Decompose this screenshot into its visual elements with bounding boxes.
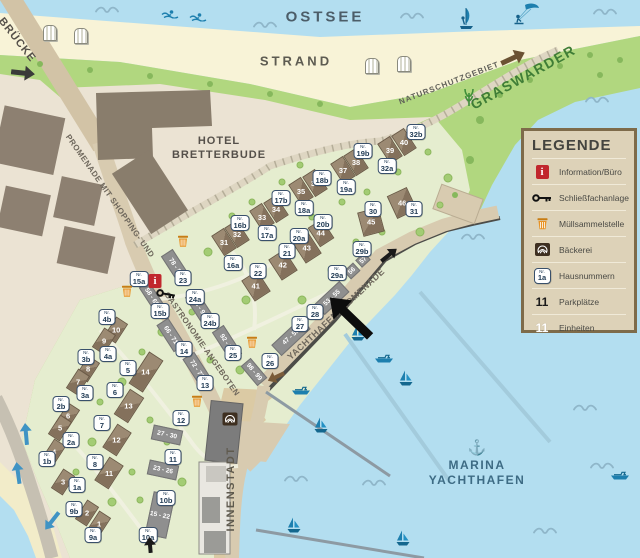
house-number-badge-15b: Nr.15b — [151, 303, 170, 319]
unit-number-icon: 11 — [536, 321, 549, 335]
house-number-badge-3a: Nr.3a — [77, 385, 94, 401]
map-label-ostsee: OSTSEE — [286, 9, 365, 26]
house-number-badge-12: Nr.12 — [173, 410, 190, 426]
unit-number: 43 — [303, 244, 311, 253]
pretzel-icon — [535, 243, 550, 256]
kitesurf-icon — [511, 3, 541, 25]
anchor-icon: ⚓ — [468, 441, 487, 456]
house-number-badge-1a: Nr.1a — [69, 477, 86, 493]
unit-number: 42 — [279, 261, 287, 270]
unit-number: 9 — [102, 336, 106, 345]
quay-road-arrow — [377, 244, 400, 266]
legend-item-parkplätze: 11Parkplätze — [532, 288, 626, 314]
house-number-badge-21: Nr.21 — [279, 243, 296, 259]
unit-number: 37 — [339, 166, 347, 175]
motorboat-icon — [610, 472, 630, 481]
unit-number: 45 — [367, 218, 375, 227]
motorboat-icon — [374, 355, 394, 364]
map-label-marina: MARINA — [449, 458, 506, 472]
wave-icon — [573, 404, 597, 413]
wave-icon — [362, 479, 386, 488]
legend-item-label: Einheiten — [559, 323, 594, 333]
unit-number: 31 — [220, 238, 228, 247]
motorboat-icon — [610, 472, 630, 481]
bridge-road-arrow — [10, 64, 35, 81]
chair-icon — [397, 56, 411, 72]
trash-icon — [122, 285, 133, 298]
trash-icon — [247, 336, 258, 349]
resort-map: OSTSEESTRANDNATURSCHUTZGEBIETGRASWARDERH… — [0, 0, 640, 558]
sailboat-icon — [314, 417, 329, 434]
house-number-badge-13: Nr.13 — [197, 375, 214, 391]
wave-icon — [253, 21, 277, 30]
house-number-badge-26: Nr.26 — [262, 353, 279, 369]
wave-icon — [400, 12, 424, 21]
wave-icon — [95, 6, 119, 15]
legend-item-label: Müllsammelstelle — [559, 219, 624, 229]
house-number-badge-11: Nr.11 — [165, 449, 182, 465]
house-number-badge-16b: Nr.16b — [231, 215, 250, 231]
unit-number: 11 — [105, 469, 113, 478]
grass-icon — [462, 87, 476, 107]
coast-road-3-arrow — [40, 509, 63, 534]
pretzel-icon — [223, 413, 238, 426]
map-label-promenade-mit-shopping-und: PROMENADE MIT SHOPPING- UND — [64, 133, 156, 260]
house-number-badge-14: Nr.14 — [176, 341, 193, 357]
house-number-badge-7: Nr.7 — [94, 415, 111, 431]
house-number-badge-19b: Nr.19b — [354, 143, 373, 159]
house-number-badge-17b: Nr.17b — [272, 190, 291, 206]
trash-icon — [122, 285, 133, 298]
wave-icon — [533, 527, 557, 536]
legend-panel: LEGENDE iInformation/BüroSchließfachanla… — [521, 128, 637, 333]
chair-icon — [365, 58, 379, 74]
wave-icon — [284, 475, 308, 484]
wave-icon — [461, 233, 485, 242]
map-label-br-cke: BRÜCKE — [0, 15, 38, 64]
pretzel-icon — [223, 413, 238, 426]
beach-chair-icon — [43, 25, 57, 41]
house-number-badge-29b: Nr.29b — [353, 241, 372, 257]
wave-icon — [590, 462, 614, 471]
beach-chair-icon — [74, 28, 88, 44]
house-number-badge-4a: Nr.4a — [100, 346, 117, 362]
legend-item-label: Parkplätze — [559, 297, 599, 307]
swimmer-icon — [161, 10, 179, 19]
legend-item-information-büro: iInformation/Büro — [532, 158, 626, 184]
swimmer-icon — [189, 13, 207, 22]
house-number-badge-8: Nr.8 — [87, 454, 104, 470]
motorboat-icon — [291, 387, 311, 396]
sailboat-icon — [314, 417, 329, 434]
chair-icon — [74, 28, 88, 44]
innenstadt-road-arrow — [143, 537, 156, 554]
map-label-yachthafen: YACHTHAFEN — [429, 473, 526, 487]
trash-icon — [537, 217, 548, 230]
house-number-badge-2b: Nr.2b — [53, 396, 70, 412]
map-label-innenstadt: INNENSTADT — [225, 446, 237, 531]
wave-icon — [533, 527, 557, 536]
unit-number: 5 — [58, 423, 62, 432]
unit-number: 39 — [386, 146, 394, 155]
unit-number: 33 — [258, 213, 266, 222]
windsurfer-icon — [457, 6, 475, 30]
wave-icon — [593, 8, 617, 17]
grass-icon — [462, 87, 476, 107]
legend-item-label: Schließfachanlage — [559, 193, 629, 203]
wave-icon — [284, 475, 308, 484]
unit-number: 14 — [142, 368, 150, 377]
house-number-badge-22: Nr.22 — [250, 263, 267, 279]
legend-title: LEGENDE — [532, 137, 626, 154]
unit-number: 13 — [125, 402, 133, 411]
legend-item-einheiten: 11Einheiten — [532, 314, 626, 340]
house-number-badge-3b: Nr.3b — [78, 349, 95, 365]
sailboat-icon — [399, 370, 414, 387]
legend-item-label: Information/Büro — [559, 167, 622, 177]
house-number-badge-9a: Nr.9a — [85, 527, 102, 543]
unit-number: 3 — [61, 477, 65, 486]
map-label-bretterbude: BRETTERBUDE — [172, 149, 266, 161]
map-label-hotel: HOTEL — [198, 135, 240, 147]
trash-icon — [247, 336, 258, 349]
unit-building-27-30: 27 - 30 — [151, 425, 183, 446]
map-label-strand: STRAND — [260, 54, 332, 69]
chair-icon — [43, 25, 57, 41]
sailboat-icon — [396, 530, 411, 547]
coast-road-2-arrow — [11, 461, 26, 484]
wave-icon — [400, 12, 424, 21]
house-number-badge-6: Nr.6 — [107, 382, 124, 398]
wave-icon — [593, 8, 617, 17]
windsurf-icon — [457, 6, 475, 30]
beach-chair-icon — [365, 58, 379, 74]
beach-chair-icon — [397, 56, 411, 72]
trash-icon — [192, 395, 203, 408]
sailboat-icon — [287, 517, 302, 534]
house-number-badge-icon: Nr.1a — [534, 268, 551, 284]
info-icon: i — [536, 165, 549, 179]
house-number-badge-31: Nr.31 — [406, 201, 423, 217]
house-number-badge-30: Nr.30 — [365, 201, 382, 217]
kitesurfer-icon — [511, 3, 541, 25]
key-icon — [532, 193, 552, 203]
house-number-badge-29a: Nr.29a — [328, 265, 347, 281]
wave-icon — [253, 21, 277, 30]
house-number-badge-5: Nr.5 — [120, 360, 137, 376]
legend-item-bäckerei: Bäckerei — [532, 236, 626, 262]
parking-number-icon: 11 — [536, 295, 549, 309]
info-icon: i — [149, 274, 162, 288]
legend-item-schließfachanlage: Schließfachanlage — [532, 184, 626, 210]
unit-number: 8 — [86, 364, 90, 373]
house-number-badge-9b: Nr.9b — [66, 501, 83, 517]
unit-number: 35 — [297, 187, 305, 196]
harbor-arrow — [265, 368, 286, 386]
house-number-badge-4b: Nr.4b — [99, 309, 116, 325]
wave-icon — [590, 462, 614, 471]
wave-icon — [573, 404, 597, 413]
trash-icon — [178, 235, 189, 248]
house-number-badge-23: Nr.23 — [175, 270, 192, 286]
swimmer-icon — [189, 13, 207, 22]
house-number-badge-24a: Nr.24a — [186, 289, 205, 305]
legend-item-hausnummern: Nr.1aHausnummern — [532, 262, 626, 288]
unit-number: 41 — [252, 282, 260, 291]
house-number-badge-32a: Nr.32a — [378, 158, 397, 174]
house-number-badge-20a: Nr.20a — [290, 228, 309, 244]
sailboat-icon — [396, 530, 411, 547]
house-number-badge-2a: Nr.2a — [63, 432, 80, 448]
wave-icon — [362, 479, 386, 488]
wave-icon — [95, 6, 119, 15]
legend-item-label: Bäckerei — [559, 245, 592, 255]
sailboat-icon — [399, 370, 414, 387]
wave-icon — [585, 96, 609, 105]
motorboat-icon — [374, 355, 394, 364]
house-number-badge-27: Nr.27 — [292, 316, 309, 332]
house-number-badge-17a: Nr.17a — [258, 225, 277, 241]
wave-icon — [585, 96, 609, 105]
house-number-badge-10b: Nr.10b — [157, 490, 176, 506]
unit-number: 2 — [85, 508, 89, 517]
trash-icon — [192, 395, 203, 408]
house-number-badge-24b: Nr.24b — [201, 313, 220, 329]
house-number-badge-15a: Nr.15a — [130, 271, 149, 287]
wave-icon — [461, 233, 485, 242]
swimmer-icon — [161, 10, 179, 19]
motorboat-icon — [291, 387, 311, 396]
house-number-badge-25: Nr.25 — [225, 345, 242, 361]
sailboat-icon — [287, 517, 302, 534]
house-number-badge-18a: Nr.18a — [295, 200, 314, 216]
info-icon: i — [149, 274, 162, 288]
house-number-badge-16a: Nr.16a — [224, 255, 243, 271]
legend-item-label: Hausnummern — [559, 271, 615, 281]
coast-road-1-arrow — [19, 423, 33, 446]
house-number-badge-20b: Nr.20b — [314, 214, 333, 230]
anchor-icon: ⚓ — [468, 440, 487, 457]
house-number-badge-32b: Nr.32b — [407, 124, 426, 140]
trash-icon — [178, 235, 189, 248]
legend-item-müllsammelstelle: Müllsammelstelle — [532, 210, 626, 236]
house-number-badge-1b: Nr.1b — [39, 451, 56, 467]
unit-number: 12 — [113, 436, 121, 445]
house-number-badge-19a: Nr.19a — [337, 179, 356, 195]
house-number-badge-18b: Nr.18b — [313, 170, 332, 186]
